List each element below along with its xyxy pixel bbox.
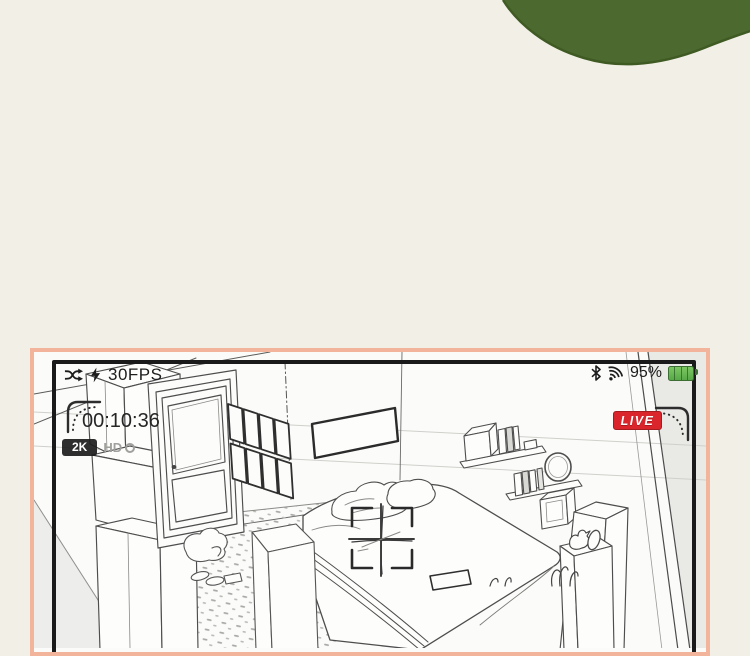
battery-icon [668,366,694,381]
timecode-label: 00:10:36 [82,410,160,433]
badges-row: 2K HD [62,439,135,456]
shuffle-icon [64,367,83,383]
battery-percent-label: 95% [630,364,662,382]
fps-label: 30FPS [108,365,162,385]
viewfinder-frame [52,360,696,656]
status-left: 30FPS [64,365,162,385]
signal-icon [605,363,625,382]
status-right: 95% [591,364,694,382]
flash-icon [90,367,101,383]
bluetooth-icon [591,365,601,381]
live-badge: LIVE [613,411,662,430]
resolution-badge: 2K [62,439,97,456]
green-blob-decoration [500,0,750,90]
record-ring-icon [125,443,135,453]
viewfinder-panel: 30FPS 00:10:36 2K HD 95% LIVE [30,348,710,656]
quality-badge: HD [103,440,135,455]
